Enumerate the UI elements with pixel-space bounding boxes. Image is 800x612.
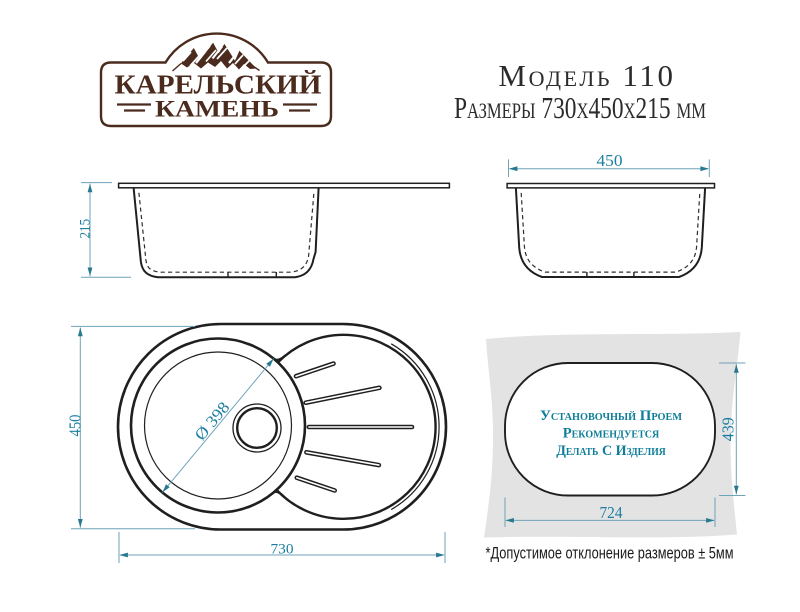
svg-text:КАРЕЛЬСКИЙ: КАРЕЛЬСКИЙ xyxy=(115,70,322,100)
svg-text:Делать С Изделия: Делать С Изделия xyxy=(556,443,666,459)
svg-text:*Допустимое отклонение размеро: *Допустимое отклонение размеров ± 5мм xyxy=(486,544,734,562)
svg-text:724: 724 xyxy=(600,503,623,522)
svg-text:Модель 110: Модель 110 xyxy=(498,58,675,93)
svg-text:450: 450 xyxy=(597,151,623,170)
svg-text:730: 730 xyxy=(271,542,294,558)
svg-text:Установочный Проем: Установочный Проем xyxy=(540,408,683,424)
svg-text:450: 450 xyxy=(65,415,84,437)
svg-text:КАМЕНЬ: КАМЕНЬ xyxy=(155,97,279,122)
svg-text:Размеры 730х450х215 мм: Размеры 730х450х215 мм xyxy=(454,90,706,125)
svg-text:Рекомендуется: Рекомендуется xyxy=(563,426,660,442)
svg-text:215: 215 xyxy=(78,219,94,239)
svg-text:439: 439 xyxy=(719,417,738,441)
